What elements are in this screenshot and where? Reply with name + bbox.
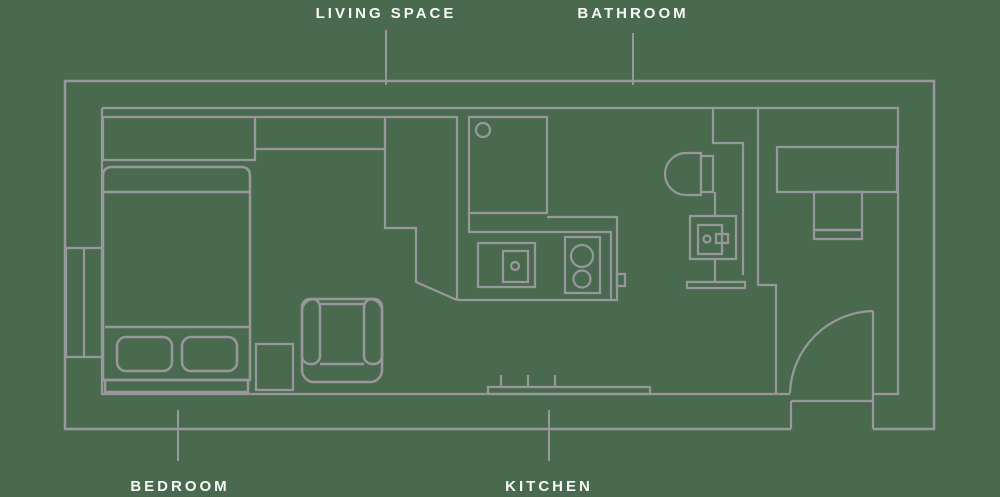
bathroom-partition [713, 108, 743, 275]
label-living-space: LIVING SPACE [316, 5, 457, 22]
window [66, 248, 102, 357]
counter-handle [617, 274, 625, 286]
stove [565, 237, 600, 293]
pillow [117, 337, 172, 371]
side-table [256, 344, 293, 390]
wall-desk [777, 147, 897, 192]
bench [488, 375, 650, 394]
cabinet-knob [476, 123, 490, 137]
vanity-drain [704, 236, 711, 243]
label-bathroom: BATHROOM [577, 5, 688, 22]
inner-wall [102, 108, 898, 394]
floor-plan: LIVING SPACE BATHROOM BEDROOM KITCHEN [0, 0, 1000, 497]
wardrobe [103, 117, 255, 160]
door-swing-arc [790, 311, 873, 393]
upper-cabinet [469, 117, 547, 213]
sink-drain [511, 262, 519, 270]
bed [103, 167, 250, 392]
label-kitchen: KITCHEN [505, 478, 593, 495]
entry-door [790, 311, 873, 429]
seat-unit [814, 192, 862, 239]
headboard [105, 380, 248, 392]
tall-cabinet [385, 117, 457, 300]
toilet-tank [701, 156, 713, 192]
bathroom-threshold [687, 282, 745, 288]
sink [478, 243, 535, 287]
vanity-sink [690, 192, 736, 282]
living-partition [758, 108, 776, 394]
label-bedroom: BEDROOM [130, 478, 229, 495]
desk [255, 117, 385, 149]
armchair [302, 299, 382, 382]
pillow [182, 337, 237, 371]
toilet [665, 153, 713, 195]
outer-wall [65, 81, 934, 429]
burner-large [571, 245, 593, 267]
floor-plan-drawing [0, 0, 1000, 497]
door-jambs [791, 401, 873, 429]
burner-small [574, 271, 591, 288]
toilet-bowl [665, 153, 701, 195]
